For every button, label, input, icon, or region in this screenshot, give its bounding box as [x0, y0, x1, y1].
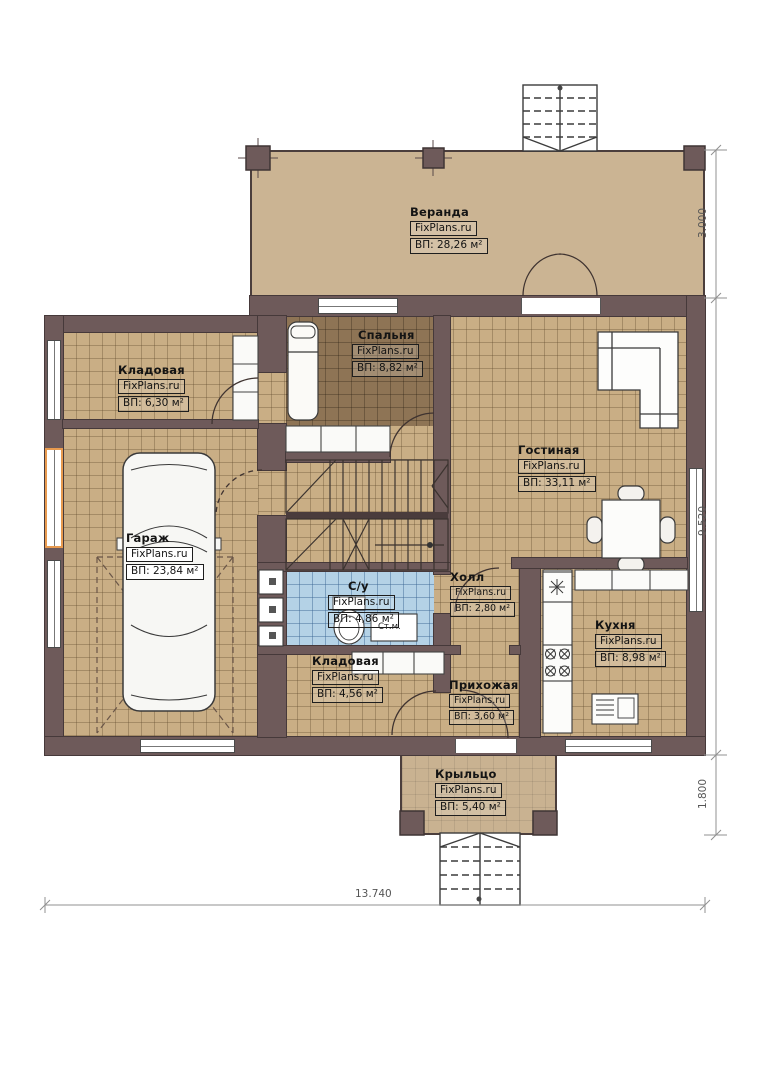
brand-box: FixPlans.ru [449, 694, 510, 708]
wall-h1 [286, 452, 390, 462]
wall-h0 [63, 420, 258, 428]
entry-door-opening [455, 739, 517, 753]
brand-box: FixPlans.ru [518, 459, 585, 475]
brand-box: FixPlans.ru [312, 670, 379, 686]
area-box: ВП: 6,30 м² [118, 396, 189, 412]
brand-box: FixPlans.ru [126, 547, 193, 563]
area-box: ВП: 33,11 м² [518, 476, 596, 492]
brand-box: FixPlans.ru [410, 221, 477, 237]
wall-v1-b [258, 424, 286, 470]
brand-box: FixPlans.ru [450, 586, 511, 600]
wall-v1-d [258, 654, 286, 737]
wall-v3 [520, 568, 540, 737]
room-label-bedroom: Спальня FixPlans.ru ВП: 8,82 м² [352, 329, 423, 377]
room-label-garage: Гараж FixPlans.ru ВП: 23,84 м² [126, 532, 204, 580]
room-label-storage-bottom: Кладовая FixPlans.ru ВП: 4,56 м² [312, 655, 383, 703]
floor-plan: Веранда FixPlans.ru ВП: 28,26 м² Кладова… [0, 0, 763, 1080]
entry-stairs-top [523, 85, 597, 151]
wall-v1-c [258, 516, 286, 646]
brand-box: FixPlans.ru [595, 634, 662, 650]
veranda-door-opening [521, 298, 601, 314]
area-box: ВП: 3,60 м² [449, 710, 514, 724]
area-box: ВП: 8,98 м² [595, 651, 666, 667]
room-label-veranda: Веранда FixPlans.ru ВП: 28,26 м² [410, 206, 488, 254]
area-box: ВП: 4,56 м² [312, 687, 383, 703]
area-box: ВП: 5,40 м² [435, 800, 506, 816]
dim-veranda-depth: 3.000 [697, 208, 709, 238]
room-label-kitchen: Кухня FixPlans.ru ВП: 8,98 м² [595, 619, 666, 667]
room-label-porch: Крыльцо FixPlans.ru ВП: 5,40 м² [435, 768, 506, 816]
wall-h3-b [510, 646, 520, 654]
dim-porch-depth: 1.800 [697, 779, 709, 809]
dim-house-depth: 9.520 [697, 506, 709, 536]
area-box: ВП: 28,26 м² [410, 238, 488, 254]
window-garage-left-2 [47, 560, 61, 648]
area-box: ВП: 8,82 м² [352, 361, 423, 377]
wall-h2 [258, 563, 450, 571]
window-garage-left-highlight [45, 448, 63, 548]
window-storage-left [47, 340, 61, 420]
window-bedroom-top [318, 298, 398, 314]
wall-top-left-block [45, 316, 258, 332]
brand-box: FixPlans.ru [118, 379, 185, 395]
window-living-right [689, 468, 703, 612]
washing-machine-label: Ст.м. [378, 622, 401, 632]
room-label-hall: Холл FixPlans.ru ВП: 2,80 м² [450, 571, 515, 617]
brand-box: FixPlans.ru [352, 344, 419, 360]
entry-stairs-bottom [440, 833, 520, 905]
wall-h4 [512, 558, 687, 568]
wall-h3-a [258, 646, 460, 654]
wall-v2-a [434, 316, 450, 574]
brand-box: FixPlans.ru [328, 595, 395, 611]
brand-box: FixPlans.ru [435, 783, 502, 799]
garage-gate-opening [140, 739, 235, 753]
window-kitchen-bottom [565, 739, 652, 753]
wall-v1-a [258, 316, 286, 372]
area-box: ВП: 2,80 м² [450, 602, 515, 616]
room-label-living: Гостиная FixPlans.ru ВП: 33,11 м² [518, 444, 596, 492]
wall-v2-c [434, 652, 450, 692]
room-label-entry: Прихожая FixPlans.ru ВП: 3,60 м² [449, 679, 518, 725]
room-label-bathroom: С/у FixPlans.ru ВП: 4,86 м² [328, 580, 399, 628]
dim-total-width: 13.740 [355, 888, 392, 900]
area-box: ВП: 23,84 м² [126, 564, 204, 580]
room-label-storage-top: Кладовая FixPlans.ru ВП: 6,30 м² [118, 364, 189, 412]
